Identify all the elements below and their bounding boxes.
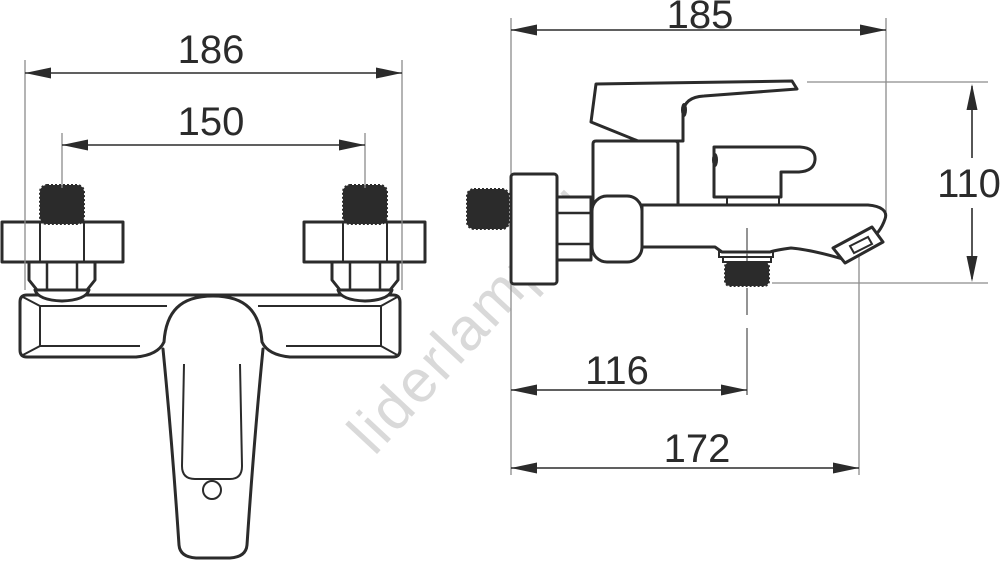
connection-hex-nut [557, 197, 591, 260]
dim-110-value: 110 [937, 162, 1000, 206]
technical-drawing-page: liderlamp.pl [0, 0, 1000, 563]
arrowhead-right [833, 463, 859, 474]
dim-150-value: 150 [178, 100, 245, 144]
arrowhead-left [62, 140, 88, 151]
collar [338, 290, 392, 301]
dimension-connection-spacing: 150 [62, 100, 365, 151]
arrowhead-right [339, 140, 365, 151]
threaded-stub [343, 185, 387, 224]
arrowhead-left [25, 68, 51, 79]
dimension-outlet-offset: 116 [511, 349, 747, 396]
hex-nut [332, 262, 398, 290]
hex-nut [29, 262, 95, 290]
collar [35, 290, 89, 301]
dimension-spout-reach: 172 [511, 427, 859, 474]
wall-flange-plate [511, 174, 557, 284]
handle-pivot-mark [681, 103, 687, 117]
front-view: 186 150 [2, 28, 425, 558]
shower-outlet [719, 252, 773, 286]
arrowhead-up [967, 84, 978, 110]
arrowhead-left [511, 385, 537, 396]
dimension-overall-depth: 185 [511, 0, 886, 37]
arrowhead-right [860, 25, 886, 36]
arrowhead-left [511, 463, 537, 474]
dimension-overall-width: 186 [25, 28, 402, 79]
dim-186-value: 186 [178, 28, 245, 72]
eccentric-flange [304, 222, 425, 262]
diverter-knob [714, 147, 815, 197]
arrowhead-right [721, 385, 747, 396]
threaded-stub [40, 185, 84, 224]
wall-mount-right [304, 185, 425, 301]
arrowhead-left [511, 25, 537, 36]
wall-threaded-nipple [467, 189, 509, 229]
dimension-overall-height: 110 [937, 84, 1000, 282]
arrowhead-down [967, 256, 978, 282]
eccentric-flange [2, 222, 123, 262]
arrowhead-right [376, 68, 402, 79]
outlet-thread [725, 262, 769, 286]
dim-116-value: 116 [585, 349, 649, 393]
handle-lever [163, 349, 263, 558]
wall-mount-left [2, 185, 123, 301]
diverter-pivot-mark [712, 153, 718, 167]
side-view: 185 110 116 172 [467, 0, 1000, 475]
connection-barrel-nut [592, 196, 642, 262]
dim-172-value: 172 [664, 427, 731, 471]
dim-185-value: 185 [667, 0, 734, 37]
faucet-dimension-drawing: 186 150 [0, 0, 1000, 563]
lever-handle-side [591, 81, 797, 141]
